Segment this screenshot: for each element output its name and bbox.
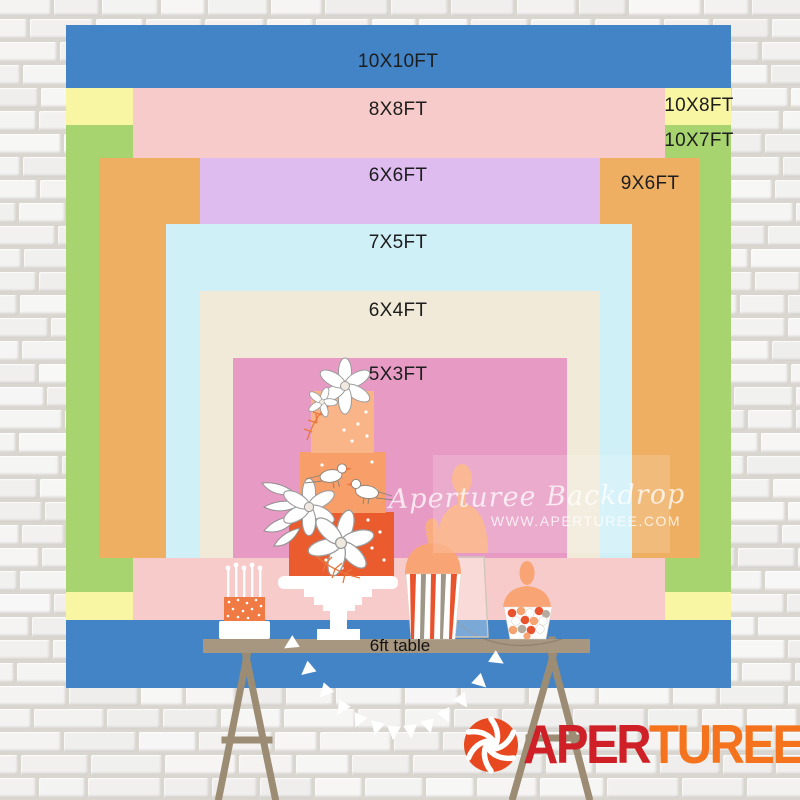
size-label-6x4: 6X4FT	[369, 300, 428, 322]
size-label-8x8: 8X8FT	[369, 99, 428, 121]
size-label-9x6: 9X6FT	[621, 173, 680, 195]
size-label-10x8: 10X8FT	[664, 95, 733, 117]
aperture-icon	[463, 711, 519, 777]
size-label-5x3: 5X3FT	[369, 364, 428, 386]
size-label-7x5: 7X5FT	[369, 232, 428, 254]
size-label-10x7: 10X7FT	[664, 130, 733, 152]
watermark-url: WWW.APERTUREE.COM	[491, 513, 681, 529]
logo-text-part1: APER	[523, 715, 649, 775]
logo-text: APERTUREE	[523, 718, 800, 773]
product-image: 10X10FT 10X8FT 10X7FT 8X8FT 9X6FT 6X6FT …	[0, 0, 800, 800]
watermark-script: Aperturee Backdrop	[388, 479, 685, 515]
aperturee-logo: APERTUREE	[463, 711, 800, 777]
size-label-10x10: 10X10FT	[358, 51, 438, 73]
size-label-6x6: 6X6FT	[369, 165, 428, 187]
six-ft-table-label: 6ft table	[370, 636, 431, 656]
logo-text-part2: TUREE	[649, 715, 800, 775]
